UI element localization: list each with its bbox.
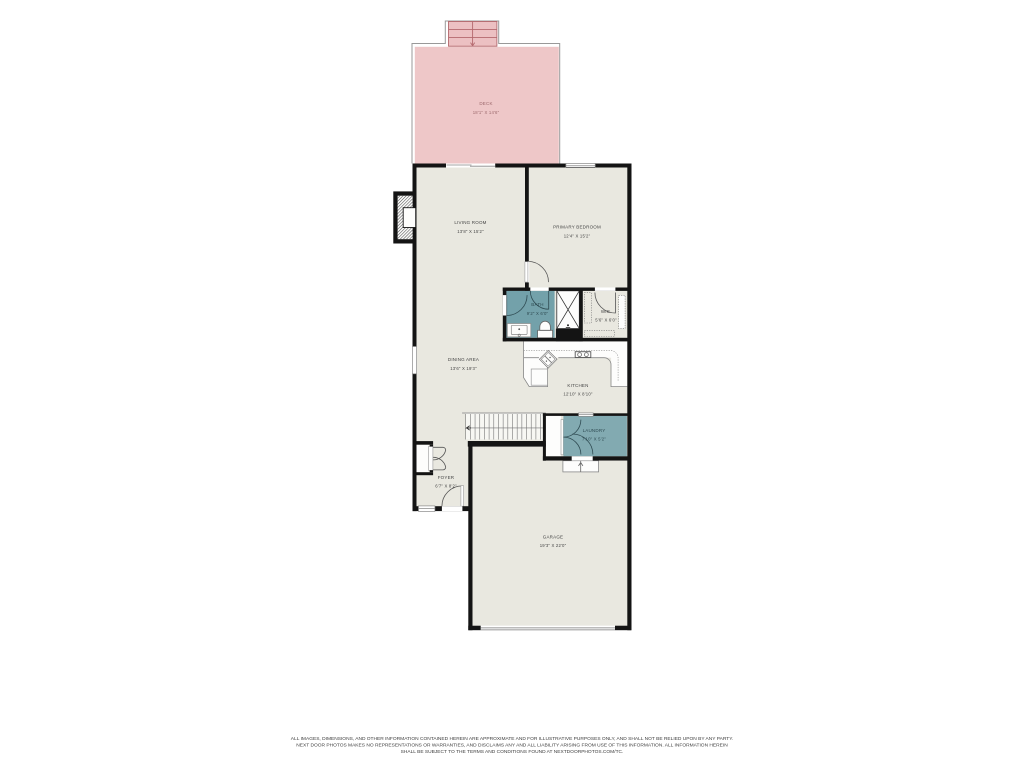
svg-text:GARAGE: GARAGE bbox=[543, 535, 563, 540]
svg-text:BATH: BATH bbox=[531, 302, 543, 307]
svg-text:NEXT DOOR PHOTOS MAKES NO REPR: NEXT DOOR PHOTOS MAKES NO REPRESENTATION… bbox=[296, 743, 728, 749]
svg-text:FOYER: FOYER bbox=[438, 475, 455, 480]
svg-text:19'3" X 22'0": 19'3" X 22'0" bbox=[540, 543, 567, 548]
svg-text:12'4" X 15'2": 12'4" X 15'2" bbox=[564, 234, 591, 239]
svg-text:12'10" X 8'10": 12'10" X 8'10" bbox=[563, 392, 592, 397]
svg-text:18'1" X 14'6": 18'1" X 14'6" bbox=[473, 110, 500, 115]
svg-text:7'10" X 5'2": 7'10" X 5'2" bbox=[582, 437, 606, 442]
svg-text:9'2" X 6'0": 9'2" X 6'0" bbox=[527, 311, 549, 316]
svg-text:SHALL BE SUBJECT TO THE TERMS: SHALL BE SUBJECT TO THE TERMS AND CONDIT… bbox=[401, 749, 624, 755]
svg-text:5'6" X 6'0": 5'6" X 6'0" bbox=[595, 318, 617, 323]
svg-text:PRIMARY BEDROOM: PRIMARY BEDROOM bbox=[553, 225, 601, 230]
svg-text:13'8" X 15'2": 13'8" X 15'2" bbox=[457, 229, 484, 234]
svg-text:6'7" X 8'2": 6'7" X 8'2" bbox=[435, 484, 457, 489]
svg-text:DINING AREA: DINING AREA bbox=[448, 357, 479, 362]
svg-text:WIC: WIC bbox=[601, 309, 611, 314]
svg-text:13'6" X 19'3": 13'6" X 19'3" bbox=[450, 366, 477, 371]
svg-text:DECK: DECK bbox=[479, 101, 492, 106]
svg-text:LAUNDRY: LAUNDRY bbox=[583, 428, 606, 433]
svg-text:LIVING ROOM: LIVING ROOM bbox=[454, 220, 486, 225]
svg-text:ALL IMAGES, DIMENSIONS, AND OT: ALL IMAGES, DIMENSIONS, AND OTHER INFORM… bbox=[291, 736, 733, 742]
svg-text:KITCHEN: KITCHEN bbox=[567, 383, 588, 388]
